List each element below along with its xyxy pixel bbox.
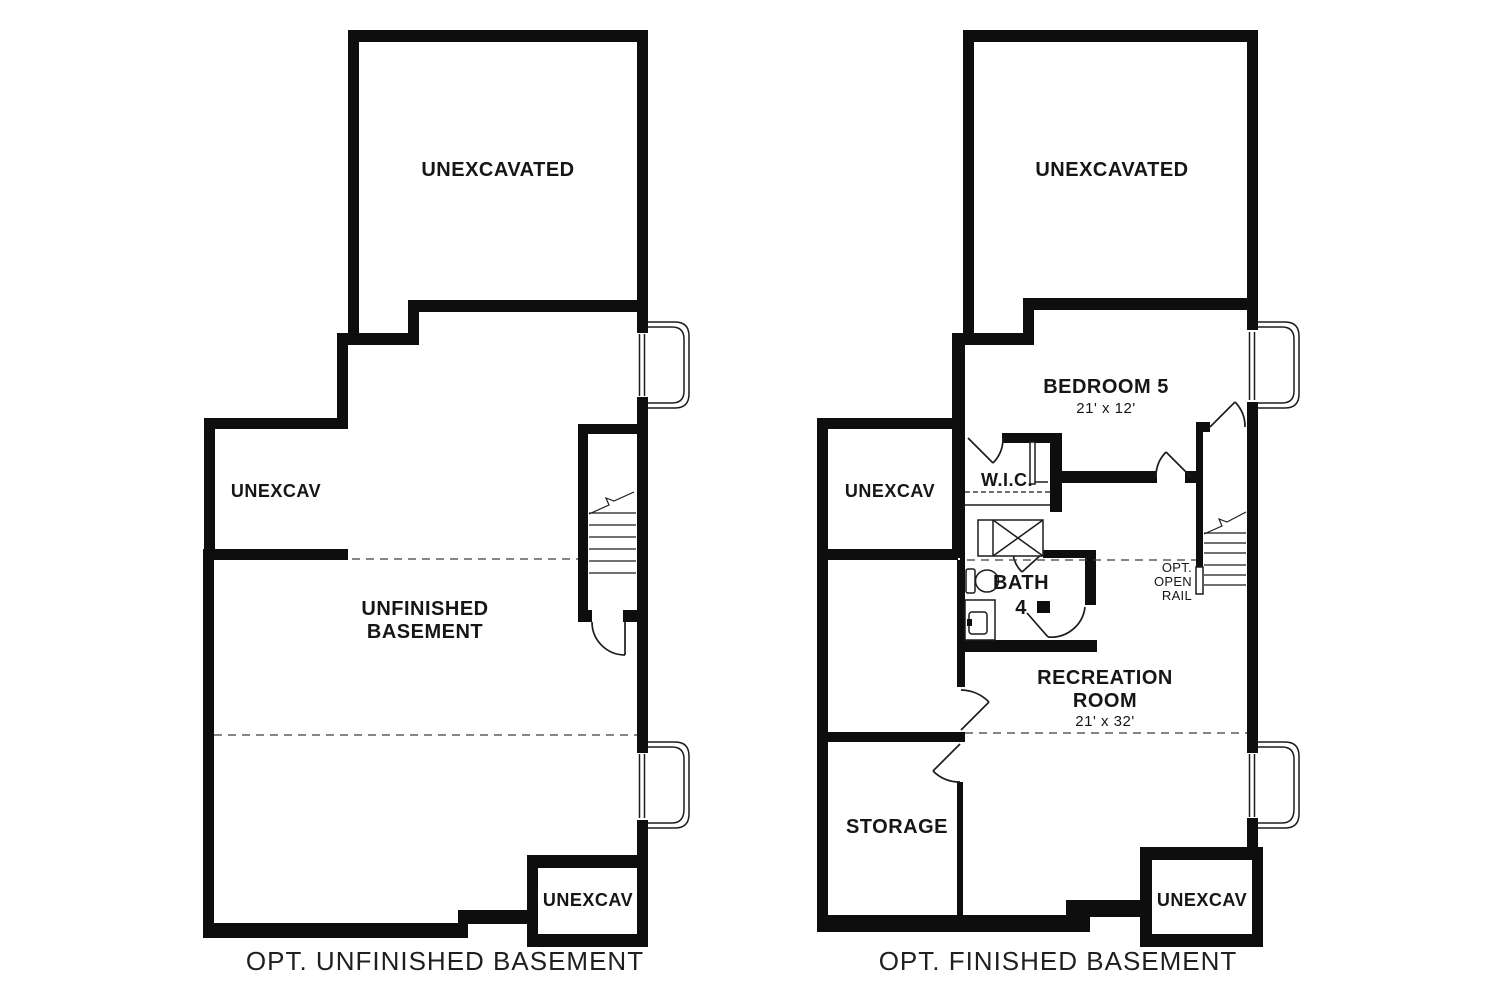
left-plan-separators xyxy=(214,559,637,735)
wall-segment xyxy=(963,30,1258,42)
stair-break-line xyxy=(1204,512,1246,534)
wall-segment xyxy=(458,910,530,924)
door-swing-arc xyxy=(1235,402,1245,427)
wall-segment xyxy=(1196,422,1203,567)
door-leaf xyxy=(1166,452,1191,477)
wall-segment xyxy=(637,820,648,947)
room-label-recreation-room: ROOM xyxy=(1073,690,1137,712)
window-bay-outline xyxy=(1258,327,1294,403)
window-bay-outline xyxy=(1258,747,1294,823)
door-swing-arc xyxy=(933,771,960,782)
open-rail-post xyxy=(1196,567,1203,594)
wall-segment xyxy=(963,640,1097,652)
left-plan: UNEXCAVATED UNEXCAV UNFINISHED BASEMENT … xyxy=(203,30,689,976)
wall-segment xyxy=(817,418,828,932)
left-plan-doors xyxy=(592,622,625,655)
wall-segment xyxy=(952,333,965,558)
wall-segment xyxy=(1023,298,1258,310)
wall-segment xyxy=(963,30,974,345)
room-label-unexcav-left: UNEXCAV xyxy=(231,481,321,501)
wall-segment xyxy=(1066,900,1152,917)
wall-segment xyxy=(204,418,348,429)
open-rail-note-line2: OPEN xyxy=(1154,574,1192,589)
door-leaf xyxy=(1210,402,1235,427)
wall-segment xyxy=(1247,30,1258,330)
wall-segment xyxy=(527,855,648,868)
wall-segment xyxy=(203,549,214,938)
wall-segment xyxy=(348,30,648,42)
door-swing-arc xyxy=(1156,452,1166,477)
door-swing-arc xyxy=(592,622,625,655)
door-leaf xyxy=(961,702,989,730)
plan-caption: OPT. UNFINISHED BASEMENT xyxy=(246,946,644,976)
room-label-unexcavated: UNEXCAVATED xyxy=(421,159,574,181)
room-label-bedroom5: BEDROOM 5 xyxy=(1043,376,1169,398)
window-bay-outline xyxy=(648,747,684,823)
room-label-storage: STORAGE xyxy=(846,816,948,838)
door-leaf xyxy=(968,438,993,463)
wall-segment xyxy=(637,30,648,333)
door-swing-arc xyxy=(993,438,1003,463)
door-swing-arc xyxy=(1048,607,1085,637)
room-dims-recreation: 21' x 32' xyxy=(1075,713,1134,730)
wall-segment xyxy=(817,915,1090,932)
plan-caption: OPT. FINISHED BASEMENT xyxy=(879,946,1238,976)
room-label-wic: W.I.C. xyxy=(981,470,1033,490)
wall-segment xyxy=(1140,847,1152,947)
room-label-unexcav-bottom: UNEXCAV xyxy=(543,890,633,910)
room-label-unexcavated: UNEXCAVATED xyxy=(1035,159,1188,181)
room-label-unexcav-left: UNEXCAV xyxy=(845,481,935,501)
wall-segment xyxy=(1085,556,1096,605)
open-rail-note-line3: RAIL xyxy=(1162,588,1192,603)
wall-segment xyxy=(578,424,637,434)
right-plan: UNEXCAVATED BEDROOM 5 21' x 12' UNEXCAV … xyxy=(817,30,1299,976)
room-label-bath-number: 4 xyxy=(1015,597,1027,619)
door-leaf xyxy=(933,744,960,771)
room-label-basement: BASEMENT xyxy=(367,621,483,643)
wall-segment xyxy=(623,610,637,622)
left-plan-stairs xyxy=(589,492,636,573)
wall-segment xyxy=(527,855,538,947)
wall-segment xyxy=(637,397,648,753)
wall-segment xyxy=(337,333,348,429)
wall-segment xyxy=(1196,422,1210,432)
door-leaf xyxy=(1027,613,1048,637)
shower-pan xyxy=(978,520,1043,556)
floorplan-canvas: UNEXCAVATED UNEXCAV UNFINISHED BASEMENT … xyxy=(0,0,1500,1000)
wall-segment xyxy=(1247,402,1258,753)
room-dims-bedroom5: 21' x 12' xyxy=(1076,400,1135,417)
wall-segment xyxy=(1140,847,1263,860)
room-label-unfinished: UNFINISHED xyxy=(361,598,488,620)
wall-segment xyxy=(1252,847,1263,947)
wall-segment xyxy=(957,782,963,915)
wall-segment xyxy=(1247,818,1258,860)
wall-segment xyxy=(1050,471,1157,483)
wall-segment xyxy=(408,300,648,312)
room-label-bath: BATH xyxy=(993,572,1049,594)
toilet-tank xyxy=(966,569,975,593)
wall-segment xyxy=(203,923,468,938)
wall-segment xyxy=(348,30,359,345)
sink-faucet xyxy=(967,619,972,626)
wall-segment xyxy=(1037,601,1050,613)
wall-segment xyxy=(820,418,965,429)
wall-segment xyxy=(817,549,958,560)
wall-segment xyxy=(578,610,592,622)
window-bay-outline xyxy=(648,327,684,403)
wall-segment xyxy=(337,333,419,345)
door-swing-arc xyxy=(961,690,989,702)
wall-segment xyxy=(828,732,965,742)
room-label-recreation: RECREATION xyxy=(1037,667,1173,689)
room-label-unexcav-bottom: UNEXCAV xyxy=(1157,890,1247,910)
wall-segment xyxy=(578,424,588,622)
wall-segment xyxy=(204,418,215,560)
right-plan-stairs xyxy=(1196,512,1246,594)
wall-segment xyxy=(204,549,348,560)
open-rail-note-line1: OPT. xyxy=(1162,560,1192,575)
stair-break-line xyxy=(589,492,634,514)
